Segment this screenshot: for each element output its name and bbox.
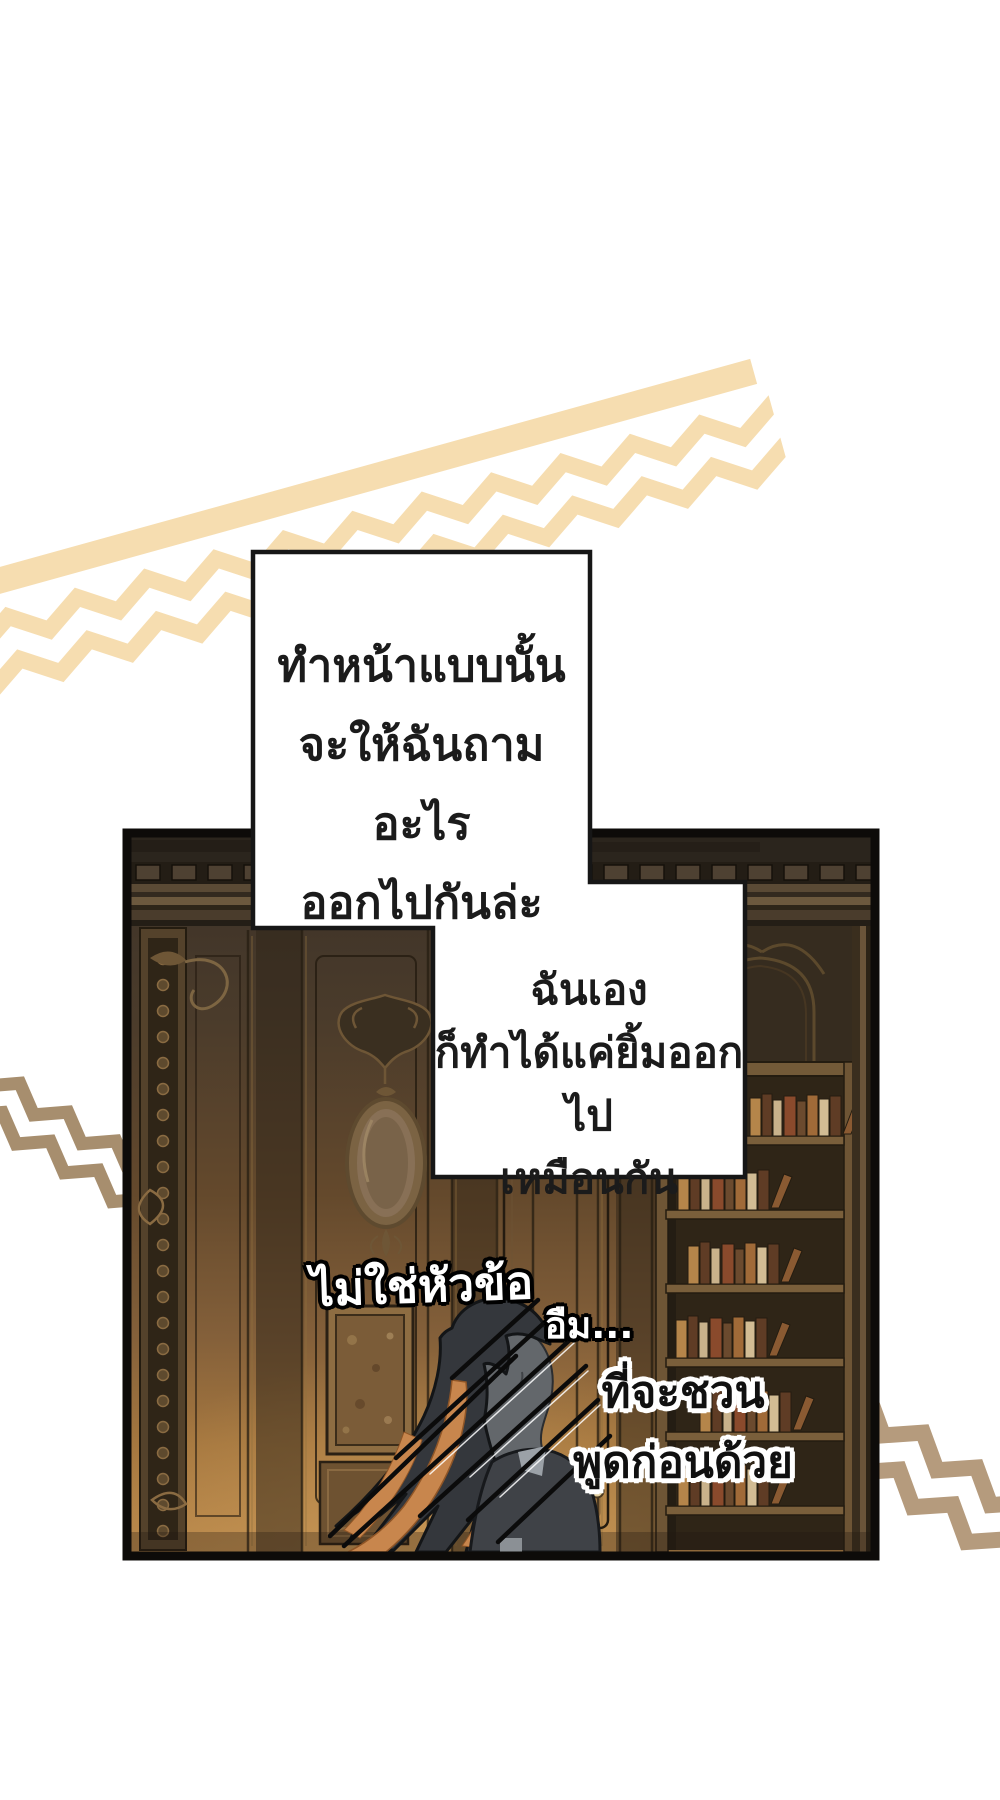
caption-line: ที่จะชวน [573,1358,793,1428]
caption-line: พูดก่อนด้วย [573,1428,793,1498]
speech-line: ออกไปกันล่ะ [253,863,590,942]
speech-line: ฉันเอง [433,958,745,1021]
speech-bubble-1: ทำหน้าแบบนั้น จะให้ฉันถามอะไร ออกไปกันล่… [253,626,590,942]
caption-hmm: อืม... [545,1296,634,1355]
speech-line: ทำหน้าแบบนั้น [253,626,590,705]
caption-invite: ที่จะชวน พูดก่อนด้วย [573,1358,793,1498]
speech-bubble-2: ฉันเอง ก็ทำได้แค่ยิ้มออกไป เหมือนกัน [433,958,745,1210]
speech-line: ก็ทำได้แค่ยิ้มออกไป [433,1021,745,1147]
shirt-patch [500,1538,522,1552]
picture-frame [327,1306,413,1454]
comic-page: ทำหน้าแบบนั้น จะให้ฉันถามอะไร ออกไปกันล่… [0,0,1000,1800]
speech-line: เหมือนกัน [433,1147,745,1210]
caption-not-the-topic: ไม่ใช่หัวข้อ [310,1246,535,1327]
speech-line: จะให้ฉันถามอะไร [253,705,590,863]
